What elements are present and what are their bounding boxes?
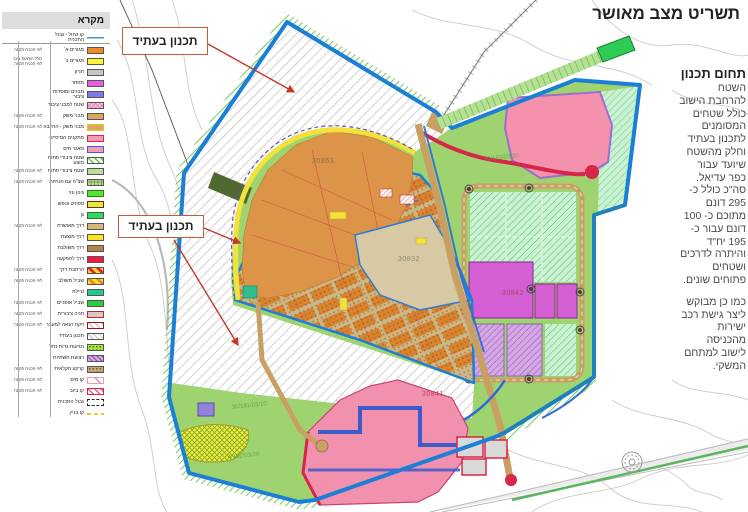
- legend-note: לפי תכנית תקפה: [8, 279, 42, 283]
- legend-swatch: [87, 34, 104, 41]
- legend-label: מגורים ב': [42, 59, 84, 64]
- legend-label: חניון: [42, 70, 84, 75]
- legend-label: נטיעות גדות נחל: [42, 345, 84, 350]
- legend-label: קו מים: [42, 378, 84, 383]
- legend-label: רצועת תשתיות: [42, 356, 84, 361]
- legend-label: קו כחול - גבול התכנית: [42, 33, 84, 43]
- legend-label: ספורט ונופש: [42, 202, 84, 207]
- legend-note: כולל הוראות בינוי לפי תכנית תקפה: [8, 57, 42, 65]
- legend-swatch: [87, 47, 104, 54]
- legend-label: שצ"פ עם הנחיות: [42, 180, 84, 185]
- legend-label: דרך מוצעת: [42, 235, 84, 240]
- legend-swatch: [87, 179, 104, 186]
- legend-swatch: [87, 69, 104, 76]
- legend-divider: [18, 41, 19, 417]
- legend-swatch: [87, 245, 104, 252]
- legend-label: מאגר מים: [42, 147, 84, 152]
- legend-note: לפי תכנית תקפה: [8, 312, 42, 316]
- legend-label: מבנים ומוסדות ציבור: [42, 90, 84, 100]
- legend-label: תכנון בעתיד: [42, 334, 84, 339]
- legend-note: לפי תכנית תקפה: [8, 389, 42, 393]
- legend-note: לפי תכנית תקפה: [8, 224, 42, 228]
- legend-label: מגורים א': [42, 48, 84, 53]
- legend-swatch: [87, 399, 104, 406]
- description-paragraph-1: השטח להרחבת הישוב כולל שטחים המסומנים לת…: [654, 82, 746, 287]
- description-paragraph-2: כמו כן מבוקש ליצר גישת רכב ישירות מהכניס…: [654, 296, 746, 373]
- legend-swatch: [87, 300, 104, 307]
- legend-swatch: [87, 102, 104, 109]
- legend-label: זיקת הנאה למעבר: [42, 323, 84, 328]
- legend-swatch: [87, 311, 104, 318]
- legend-label: מבני משק: [42, 114, 84, 119]
- legend-swatch: [87, 201, 104, 208]
- parcel-label: 30863: [312, 158, 334, 165]
- legend-note: לפי תכנית תקפה: [8, 180, 42, 184]
- legend-label: מבני משק - הרחבה: [42, 125, 84, 130]
- legend-swatch: [87, 267, 104, 274]
- legend-note: לפי תכנית תקפה: [8, 323, 42, 327]
- legend-swatch: [87, 388, 104, 395]
- legend-note: לפי תכנית תקפה: [8, 378, 42, 382]
- legend-panel: מקרא קו כחול - גבול התכנית מגורים א' לפי…: [2, 12, 110, 419]
- legend-label: מתקנים הנדסיים: [42, 136, 84, 141]
- legend-label: גבול התכנית: [42, 400, 84, 405]
- legend-swatch: [87, 58, 104, 65]
- legend-swatch: [87, 333, 104, 340]
- legend-swatch: [87, 366, 104, 373]
- legend-label: דרך להפקעה: [42, 257, 84, 262]
- parcel-label: 30841: [422, 391, 444, 398]
- legend-label: מסחר: [42, 81, 84, 86]
- legend-label: חניה ציבורית: [42, 312, 84, 317]
- description-heading: תחום תכנון: [654, 66, 746, 81]
- legend-swatch: [87, 113, 104, 120]
- legend-swatch: [87, 377, 104, 384]
- legend-swatch: [87, 80, 104, 87]
- legend-label: שטח למבני ציבור: [42, 103, 84, 108]
- legend-swatch: [87, 190, 104, 197]
- parcel-label: 30842: [502, 290, 524, 297]
- legend-label: קו ביוב: [42, 389, 84, 394]
- legend-swatch: [87, 355, 104, 362]
- legend-swatch: [87, 168, 104, 175]
- legend-swatch: [87, 157, 104, 164]
- legend-label: הרחבת דרך: [42, 268, 84, 273]
- legend-label: שטח ציבורי פתוח: [42, 169, 84, 174]
- legend-label: שביל אופניים: [42, 301, 84, 306]
- description-panel: תחום תכנון השטח להרחבת הישוב כולל שטחים …: [654, 66, 746, 382]
- legend-divider: [50, 41, 51, 417]
- legend-label: גינון ונוי: [42, 191, 84, 196]
- legend-body: קו כחול - גבול התכנית מגורים א' לפי תכני…: [2, 29, 110, 419]
- legend-swatch: [87, 124, 104, 131]
- legend-label: גן: [42, 213, 84, 218]
- legend-swatch: [87, 289, 104, 296]
- legend-swatch: [87, 344, 104, 351]
- legend-note: לפי תכנית תקפה: [8, 367, 42, 371]
- legend-title: מקרא: [2, 12, 110, 29]
- legend-note: לפי תכנית תקפה: [8, 301, 42, 305]
- legend-swatch: [87, 212, 104, 219]
- legend-swatch: [87, 135, 104, 142]
- parcel-label: 30832: [398, 256, 420, 263]
- legend-note: לפי תכנית תקפה: [8, 125, 42, 129]
- legend-label: קו בניין: [42, 411, 84, 416]
- legend-label: טיילת: [42, 290, 84, 295]
- plan-sheet: 3086330832308423084130/181/03/104/182/03…: [0, 0, 748, 512]
- legend-label: דרך מאושרת: [42, 224, 84, 229]
- legend-label: שביל משולב: [42, 279, 84, 284]
- legend-swatch: [87, 234, 104, 241]
- legend-note: לפי תכנית תקפה: [8, 268, 42, 272]
- legend-note: לפי תכנית תקפה: [8, 48, 42, 52]
- legend-swatch: [87, 322, 104, 329]
- legend-swatch: [87, 410, 104, 417]
- future-planning-label-2: תכנון בעתיד: [118, 215, 204, 238]
- legend-label: שטח ציבורי פתוח מוצע: [42, 156, 84, 166]
- legend-note: לפי תכנית תקפה: [8, 114, 42, 118]
- legend-swatch: [87, 278, 104, 285]
- legend-label: דרך משולבת: [42, 246, 84, 251]
- legend-note: לפי תכנית תקפה: [8, 169, 42, 173]
- legend-label: קרקע חקלאית: [42, 367, 84, 372]
- page-title: תשריט מצב מאושר: [592, 4, 740, 24]
- legend-swatch: [87, 146, 104, 153]
- legend-swatch: [87, 223, 104, 230]
- future-planning-label-1: תכנון בעתיד: [122, 27, 208, 55]
- legend-swatch: [87, 256, 104, 263]
- plan-map: 3086330832308423084130/181/03/104/182/03…: [112, 0, 748, 512]
- legend-swatch: [87, 91, 104, 98]
